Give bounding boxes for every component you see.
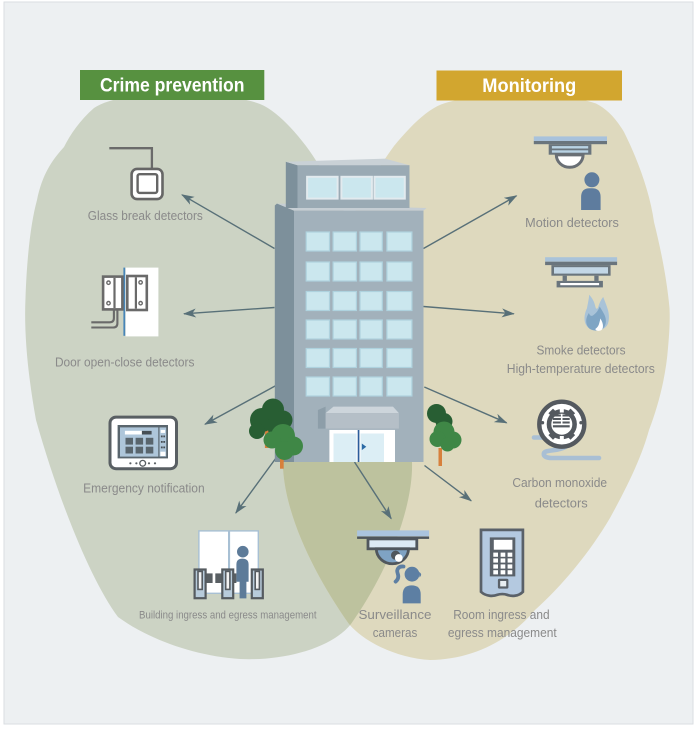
svg-text:Monitoring: Monitoring [482, 76, 576, 97]
svg-text:cameras: cameras [373, 625, 418, 640]
svg-text:Smoke detectors: Smoke detectors [537, 343, 626, 358]
svg-text:High-temperature detectors: High-temperature detectors [507, 361, 655, 376]
svg-text:Door open-close detectors: Door open-close detectors [55, 355, 195, 370]
svg-text:Room ingress and: Room ingress and [453, 607, 549, 622]
svg-text:Glass break detectors: Glass break detectors [88, 208, 203, 223]
svg-text:Emergency notification: Emergency notification [83, 481, 205, 496]
svg-text:Carbon monoxide: Carbon monoxide [512, 475, 607, 490]
svg-text:detectors: detectors [535, 496, 588, 511]
svg-text:Motion detectors: Motion detectors [525, 215, 619, 230]
svg-text:Building ingress and egress ma: Building ingress and egress management [139, 610, 317, 622]
svg-text:Surveillance: Surveillance [359, 607, 432, 622]
svg-text:Crime prevention: Crime prevention [100, 76, 245, 97]
svg-text:egress management: egress management [448, 625, 557, 640]
